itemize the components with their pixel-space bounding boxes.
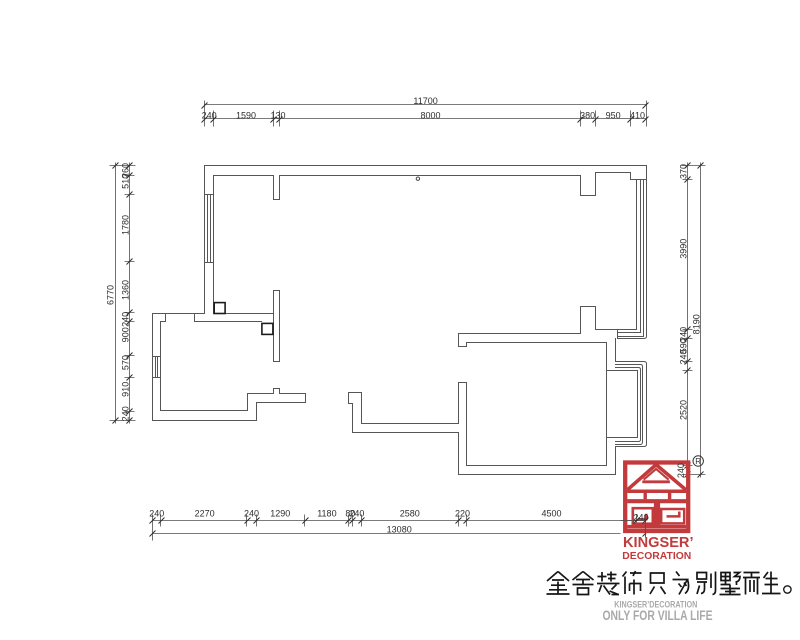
- svg-text:240: 240: [349, 508, 364, 518]
- svg-text:2580: 2580: [400, 508, 420, 518]
- svg-text:1290: 1290: [270, 508, 290, 518]
- svg-text:2520: 2520: [678, 400, 688, 420]
- svg-text:220: 220: [455, 508, 470, 518]
- svg-text:910: 910: [120, 382, 130, 397]
- svg-text:1180: 1180: [317, 508, 336, 518]
- svg-text:240: 240: [202, 111, 217, 121]
- svg-text:ONLY FOR VILLA LIFE: ONLY FOR VILLA LIFE: [603, 608, 713, 623]
- svg-text:3990: 3990: [678, 239, 688, 259]
- svg-text:510: 510: [120, 174, 130, 189]
- svg-text:380: 380: [580, 111, 595, 121]
- svg-text:KINGSER’: KINGSER’: [623, 535, 694, 551]
- svg-text:1360: 1360: [120, 280, 130, 300]
- svg-text:DECORATION: DECORATION: [622, 551, 691, 562]
- svg-text:R: R: [695, 457, 701, 466]
- svg-text:900: 900: [120, 327, 130, 342]
- svg-text:6770: 6770: [106, 285, 116, 305]
- svg-text:240: 240: [678, 349, 688, 364]
- svg-text:2270: 2270: [195, 508, 215, 518]
- svg-text:1780: 1780: [120, 215, 130, 235]
- svg-text:13080: 13080: [387, 524, 412, 534]
- svg-text:8190: 8190: [692, 314, 702, 334]
- svg-text:570: 570: [120, 355, 130, 370]
- svg-text:240: 240: [120, 312, 130, 327]
- svg-text:240: 240: [120, 406, 130, 421]
- svg-text:240: 240: [676, 463, 686, 478]
- svg-text:11700: 11700: [413, 96, 437, 106]
- svg-text:4500: 4500: [541, 508, 561, 518]
- svg-text:240: 240: [149, 508, 164, 518]
- svg-text:8000: 8000: [420, 111, 440, 121]
- svg-text:240: 240: [244, 508, 259, 518]
- svg-text:1590: 1590: [236, 111, 256, 121]
- svg-text:370: 370: [678, 164, 688, 179]
- svg-text:950: 950: [606, 111, 621, 121]
- svg-text:410: 410: [630, 111, 645, 121]
- svg-text:130: 130: [270, 111, 285, 121]
- svg-text:240: 240: [633, 512, 648, 522]
